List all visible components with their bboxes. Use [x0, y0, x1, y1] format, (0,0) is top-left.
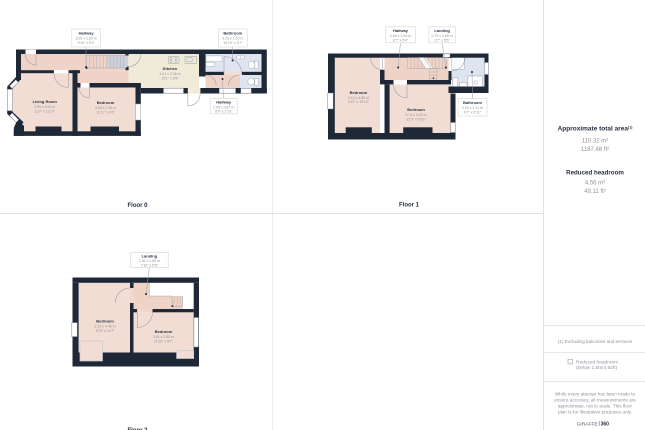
svg-text:10'3" x 15'10": 10'3" x 15'10"	[348, 100, 370, 104]
svg-text:Hallway: Hallway	[216, 100, 232, 105]
svg-text:3.00 x 1.60 m: 3.00 x 1.60 m	[75, 36, 96, 40]
svg-text:9'10" x 5'3": 9'10" x 5'3"	[77, 41, 95, 45]
svg-text:12'3" x 9'10": 12'3" x 9'10"	[406, 118, 426, 122]
svg-text:Hallway: Hallway	[393, 28, 409, 33]
svg-text:10'3" x 14'7": 10'3" x 14'7"	[95, 329, 115, 333]
svg-text:Hallway: Hallway	[79, 30, 95, 35]
svg-text:Kitchen: Kitchen	[163, 66, 178, 71]
svg-text:Bathroom: Bathroom	[463, 100, 482, 105]
svg-text:8'7" x 5'4": 8'7" x 5'4"	[393, 38, 409, 42]
svg-text:Landing: Landing	[142, 254, 158, 259]
svg-text:1187.48 ft²: 1187.48 ft²	[581, 147, 609, 153]
svg-text:Reduced headroom: Reduced headroom	[576, 359, 618, 365]
svg-text:10'10" x 3'7": 10'10" x 3'7"	[223, 41, 243, 45]
svg-text:GIRAFFE: GIRAFFE	[577, 422, 599, 428]
svg-text:6'7" x 6'11": 6'7" x 6'11"	[464, 110, 482, 114]
svg-text:Bedroom: Bedroom	[96, 319, 114, 324]
svg-text:4.56 m²: 4.56 m²	[585, 181, 605, 187]
svg-text:6'9" x 2'10": 6'9" x 2'10"	[215, 110, 233, 114]
svg-text:plan is for illustrative purpo: plan is for illustrative purposes only.	[558, 410, 632, 415]
svg-text:approximate, not to scale. Thi: approximate, not to scale. This floor	[558, 404, 633, 409]
svg-text:Bedroom: Bedroom	[407, 107, 425, 112]
svg-text:Bedroom: Bedroom	[97, 100, 115, 105]
svg-text:Living Room: Living Room	[33, 99, 58, 104]
svg-text:Approximate total area(1): Approximate total area(1)	[558, 126, 634, 133]
svg-text:2'7" x 5'5": 2'7" x 5'5"	[434, 38, 450, 42]
svg-text:15'1" x 6'9": 15'1" x 6'9"	[161, 76, 179, 80]
svg-text:11'9" x 11'10": 11'9" x 11'10"	[34, 109, 55, 113]
svg-text:Bedroom: Bedroom	[155, 329, 173, 334]
svg-text:Reduced headroom: Reduced headroom	[566, 170, 624, 177]
svg-text:Floor 1: Floor 1	[399, 203, 420, 209]
svg-text:(1) Excluding balconies and te: (1) Excluding balconies and terraces	[558, 339, 633, 344]
svg-text:ensure accuracy, all measureme: ensure accuracy, all measurements are	[554, 398, 636, 403]
svg-text:3.23 x 1.10 m: 3.23 x 1.10 m	[222, 36, 243, 40]
svg-text:11'11" x 9'6": 11'11" x 9'6"	[96, 110, 115, 114]
svg-text:110.32 m²: 110.32 m²	[582, 139, 609, 145]
svg-text:Bedroom: Bedroom	[350, 90, 368, 95]
svg-text:49.11 ft²: 49.11 ft²	[584, 189, 606, 195]
svg-text:Floor 0: Floor 0	[127, 203, 148, 209]
svg-text:Landing: Landing	[434, 28, 450, 33]
svg-text:(below 1.5m/4.92ft): (below 1.5m/4.92ft)	[576, 365, 617, 371]
svg-text:While every attempt has been m: While every attempt has been made to	[555, 392, 636, 397]
svg-text:7'10" x 5'5": 7'10" x 5'5"	[141, 263, 159, 267]
svg-text:360: 360	[601, 422, 610, 428]
svg-text:Bathroom: Bathroom	[223, 30, 242, 35]
svg-text:11'10" x 8'7": 11'10" x 8'7"	[154, 339, 174, 343]
